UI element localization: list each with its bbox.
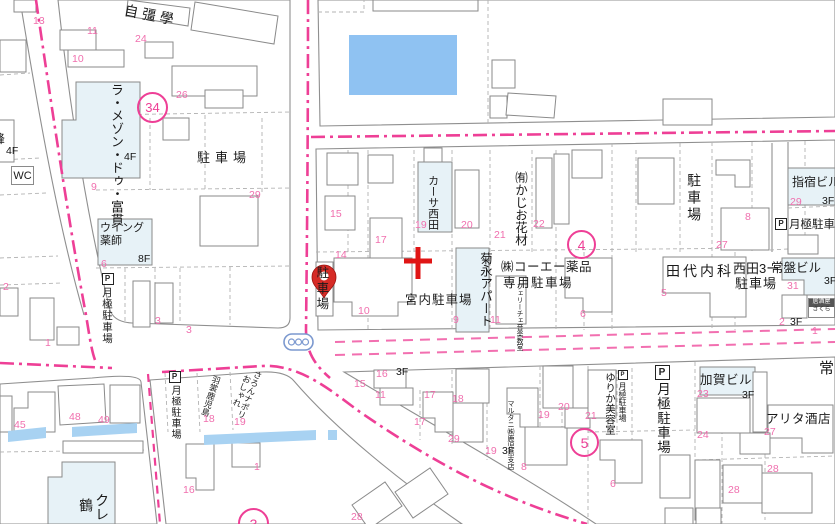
lot-number: 24	[135, 34, 147, 45]
lot-number: 10	[72, 54, 84, 65]
lot-number: 2	[3, 282, 9, 293]
lot-number: 16	[183, 485, 195, 496]
lot-number: 18	[203, 414, 215, 425]
lot-number: 23	[697, 389, 709, 400]
parking-label-nishida3-line2: 駐車場	[735, 277, 777, 292]
circled-number-5: 5	[570, 428, 599, 457]
lot-number: 16	[376, 369, 388, 380]
street-label-tokiwa: 常	[819, 360, 834, 377]
building-label-arita: アリタ酒店	[766, 412, 831, 426]
lot-number: 19	[538, 410, 550, 421]
lot-number: 29	[790, 197, 802, 208]
lot-number: 45	[14, 420, 26, 431]
lot-number: 2	[779, 317, 785, 328]
lot-number: 29	[249, 190, 261, 201]
lot-number: 11	[87, 26, 98, 37]
lot-number: 9	[453, 315, 459, 326]
floor-label: 4F	[6, 146, 18, 157]
lot-number: 20	[558, 402, 570, 413]
parking-label-tsukigime-w: P 月極駐車場	[100, 273, 115, 345]
lot-number: 17	[424, 390, 436, 401]
lot-number: 1	[45, 338, 51, 349]
parking-label-nw: 駐車場	[197, 151, 251, 166]
lot-number: 21	[585, 411, 597, 422]
building-label-kure-col1: クレ	[94, 493, 110, 521]
lot-number: 19	[485, 446, 497, 457]
lot-number: 6	[580, 309, 586, 320]
parking-label-koei-line1: ㈱コーエー薬品	[501, 260, 592, 274]
lot-number: 18	[452, 394, 464, 405]
building-label-marutani: マルタニ㈱鹿児島支店	[497, 400, 514, 440]
parking-p-icon: P	[655, 365, 670, 380]
lot-number: 11	[375, 390, 386, 401]
building-label-felice: フェリーチェ音楽教室	[505, 283, 522, 329]
parking-label-miyauchi: 宮内駐車場	[405, 293, 473, 307]
lot-number: 27	[716, 240, 728, 251]
wc-label: WC	[11, 166, 34, 185]
floor-label: 3F	[790, 317, 802, 328]
circled-number-34: 34	[137, 92, 168, 123]
building-label-wing-pharmacy: ウイング薬師	[100, 222, 150, 247]
lot-number: 1	[812, 326, 818, 337]
floor-label: 3F	[502, 446, 514, 457]
lot-number: 27	[764, 427, 776, 438]
lot-number: 21	[494, 230, 506, 241]
floor-label: 3F	[742, 390, 754, 401]
lot-number: 14	[335, 250, 347, 261]
lot-number: 3	[155, 316, 161, 327]
lot-number: 6	[101, 259, 107, 270]
lot-number: 9	[91, 182, 97, 193]
lot-number: 28	[767, 464, 779, 475]
lot-number: 49	[98, 415, 110, 426]
lot-number: 29	[448, 434, 460, 445]
building-label-casa-nishida: カーサ西田	[426, 175, 439, 231]
circled-number-4: 4	[567, 230, 596, 259]
lot-number: 19	[234, 417, 246, 428]
parking-p-icon: P	[102, 273, 114, 285]
lot-number: 8	[521, 462, 527, 473]
lot-number: 20	[461, 220, 473, 231]
traffic-light-icon	[284, 334, 313, 350]
map-graphics	[0, 0, 835, 524]
lot-number: 17	[414, 417, 426, 428]
building-label-tashiro-clinic: 田代内科	[666, 263, 734, 279]
building-label-kure-col2: 鶴	[78, 498, 94, 512]
lot-number: 1	[254, 462, 260, 473]
lot-number: 11	[490, 315, 501, 326]
building-label-la-maison: ラ・メゾン・ドゥ・富貫	[93, 83, 123, 171]
lot-number: 17	[375, 235, 387, 246]
building-label-yurika-salon: ゆりか美容室	[590, 372, 616, 408]
floor-label: 3F	[822, 196, 834, 207]
building-label-kajio-kazai: ㈲かじお花材	[497, 171, 527, 228]
lot-number: 8	[745, 212, 751, 223]
parking-label-e: 駐車場	[686, 173, 702, 237]
lot-number: 3	[186, 325, 192, 336]
building-label-kaga: 加賀ビル	[700, 373, 752, 387]
lot-number: 15	[330, 209, 342, 220]
building-label-kikunaga-apart: 菊永アパート	[446, 252, 492, 290]
parking-label-tsukigime-ne: P 月極駐車場	[775, 216, 835, 232]
floor-label: 3F	[824, 276, 835, 287]
lot-number: 31	[787, 281, 799, 292]
lot-number: 19	[415, 220, 427, 231]
school-pool	[349, 35, 457, 95]
parking-label-under-pin: 駐車場	[314, 266, 328, 322]
parking-label-tsukigime-sw: P 月極駐車場	[167, 371, 182, 440]
floor-label: 8F	[138, 254, 150, 265]
parking-p-icon: P	[775, 218, 787, 230]
floor-label: 3F	[396, 367, 408, 378]
parking-label-tsukigime-s-small: P 月極駐車場	[617, 370, 628, 422]
map-canvas[interactable]: 自彊學 ラ・メゾン・ドゥ・富貫 駐車場 WC 峰 ウイング薬師 P 月極駐車場 …	[0, 0, 835, 524]
lot-number: 48	[69, 412, 81, 423]
lot-number: 28	[351, 512, 363, 523]
parking-label-tsukigime-s-big: P 月極駐車場	[652, 365, 672, 455]
floor-label: 4F	[124, 152, 136, 163]
lot-number: 26	[176, 90, 188, 101]
parking-p-icon: P	[169, 371, 181, 383]
building-label-tokiwa: 常盤ビル	[771, 261, 821, 275]
lot-number: 6	[610, 479, 616, 490]
stream-segment	[328, 430, 337, 440]
lot-number: 24	[697, 430, 709, 441]
lot-number: 5	[661, 288, 667, 299]
lot-number: 13	[33, 16, 45, 27]
parking-p-icon: P	[618, 370, 628, 380]
lot-number: 28	[728, 485, 740, 496]
lot-number: 10	[358, 306, 370, 317]
lot-number: 15	[354, 379, 366, 390]
building-label-partial: 峰	[0, 133, 5, 147]
building-label-ibusuki: 指宿ビル	[792, 176, 835, 190]
building-label-izakaya-sakura: 居酒屋 さくら	[808, 298, 835, 318]
lot-number: 22	[533, 219, 545, 230]
